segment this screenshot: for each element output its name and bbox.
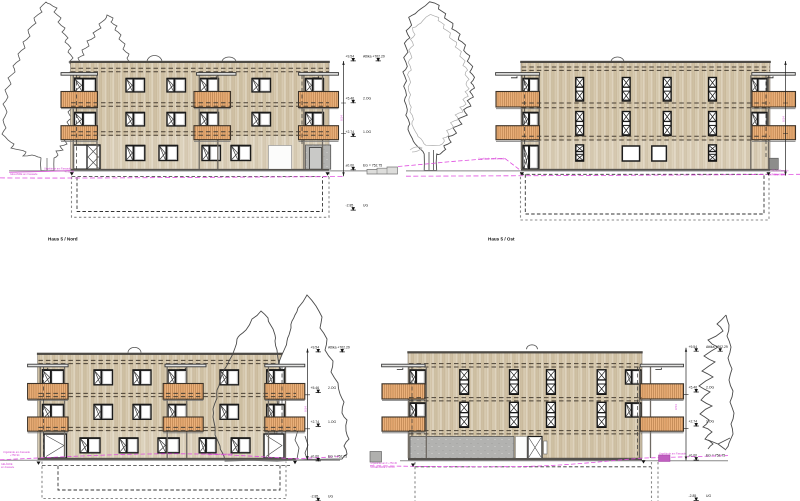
svg-text:Attika +762.29: Attika +762.29 — [328, 346, 350, 350]
svg-text:URGELÄNDE +750.10: URGELÄNDE +750.10 — [371, 466, 396, 469]
svg-text:2.OG: 2.OG — [363, 96, 371, 100]
svg-text:am Fassade: am Fassade — [1, 466, 15, 469]
svg-text:±0.00: ±0.00 — [689, 454, 698, 458]
svg-text:9.54: 9.54 — [339, 115, 343, 121]
svg-text:+2.74: +2.74 — [689, 420, 698, 424]
svg-text:Urgelände am F +750.30: Urgelände am F +750.30 — [371, 462, 398, 465]
svg-text:Urgelände am Fassade: Urgelände am Fassade — [478, 156, 506, 160]
svg-text:2.OG: 2.OG — [328, 386, 336, 390]
svg-text:+5.46: +5.46 — [311, 386, 320, 390]
svg-text:Urgelände am Fassade: Urgelände am Fassade — [659, 451, 687, 455]
svg-text:+9.54: +9.54 — [346, 55, 355, 59]
svg-text:9.54: 9.54 — [303, 406, 307, 412]
svg-text:Attika +762.29: Attika +762.29 — [706, 345, 728, 349]
svg-text:UG: UG — [328, 494, 333, 498]
svg-text:1.OG: 1.OG — [706, 420, 714, 424]
svg-text:+750.94: +750.94 — [10, 453, 20, 457]
svg-text:Haus 5 / Ost: Haus 5 / Ost — [488, 237, 515, 242]
svg-text:Urgelände am Fassade: Urgelände am Fassade — [3, 450, 31, 454]
svg-text:-2.85: -2.85 — [689, 494, 697, 498]
svg-text:2.OG: 2.OG — [706, 386, 714, 390]
svg-text:+9.54: +9.54 — [311, 346, 320, 350]
svg-text:GELÄNDE am Fassade: GELÄNDE am Fassade — [10, 172, 38, 176]
svg-text:+2.74: +2.74 — [311, 420, 320, 424]
svg-text:Haus 5 / Nord: Haus 5 / Nord — [48, 237, 78, 242]
svg-text:EG = 752.75: EG = 752.75 — [363, 163, 382, 167]
svg-text:1.OG: 1.OG — [363, 130, 371, 134]
svg-text:EG = 752.75: EG = 752.75 — [706, 454, 725, 458]
svg-text:URGELÄNDE: URGELÄNDE — [770, 174, 785, 177]
svg-text:-2.85: -2.85 — [346, 204, 354, 208]
svg-text:±0.00: ±0.00 — [346, 163, 355, 167]
svg-text:EG = 752.75: EG = 752.75 — [328, 455, 347, 459]
svg-text:+9.54: +9.54 — [689, 345, 698, 349]
svg-text:+5.46: +5.46 — [689, 386, 698, 390]
svg-text:UG: UG — [706, 494, 711, 498]
svg-text:+5.46: +5.46 — [346, 96, 355, 100]
svg-text:±0.00: ±0.00 — [311, 455, 320, 459]
svg-text:9.54: 9.54 — [781, 116, 785, 122]
svg-text:1.OG: 1.OG — [328, 420, 336, 424]
svg-text:UG: UG — [363, 204, 368, 208]
svg-text:-2.85: -2.85 — [311, 494, 319, 498]
svg-text:+2.74: +2.74 — [346, 130, 355, 134]
svg-text:9.54: 9.54 — [674, 404, 678, 410]
svg-text:Attika +762.29: Attika +762.29 — [363, 55, 385, 59]
svg-text:Urgelände am Fassade: Urgelände am Fassade — [206, 452, 234, 456]
